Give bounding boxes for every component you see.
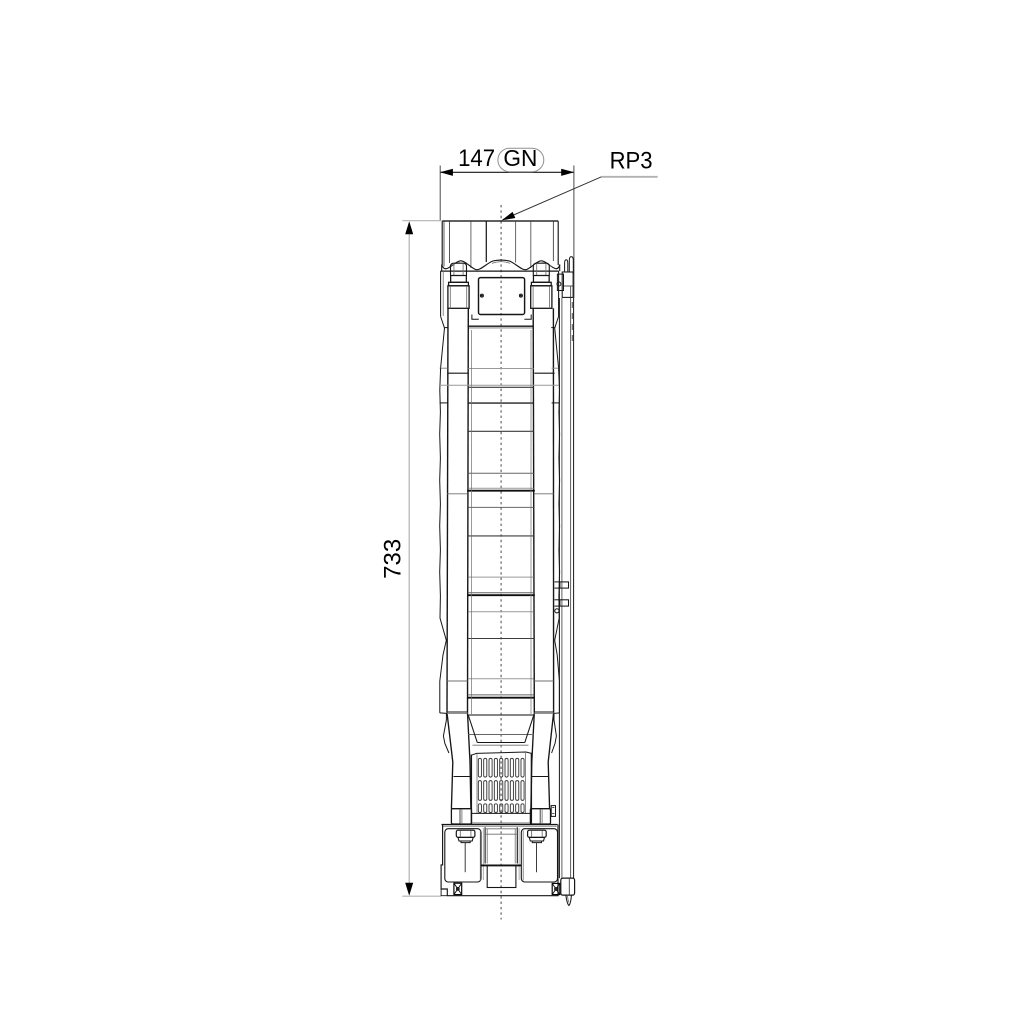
svg-text:GN: GN [503,145,537,171]
svg-text:RP3: RP3 [610,147,653,174]
svg-text:147: 147 [458,145,495,172]
svg-text:733: 733 [380,539,407,579]
